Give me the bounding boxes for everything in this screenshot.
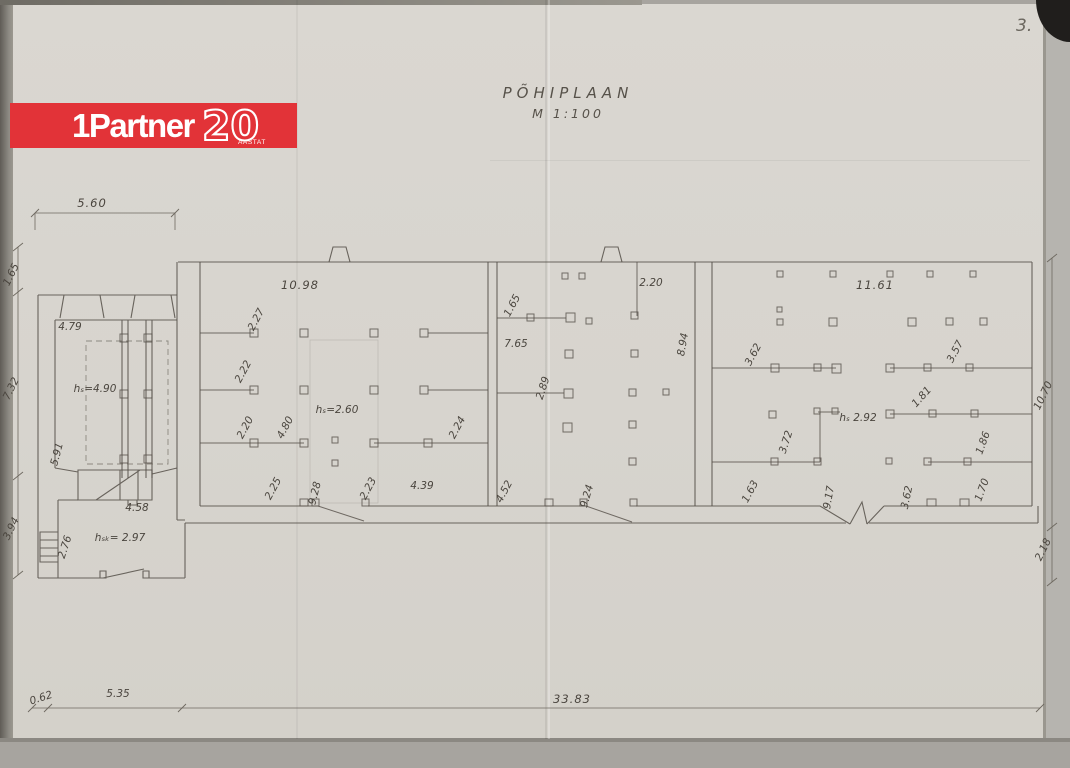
dim-bottom-b: 5.35 (106, 688, 130, 700)
hall3-dim-g: 9.17 (821, 485, 837, 510)
wing-depth-label: 5.91 (48, 441, 66, 467)
wing-width-label: 4.79 (58, 321, 82, 333)
interior-partitions (200, 262, 1032, 503)
annex-window-label: 2.76 (56, 534, 75, 560)
hall1-dim-h: 2.23 (358, 475, 380, 501)
hall1-dim-g: 9.28 (306, 480, 323, 506)
hall1-dim-i: 4.39 (410, 480, 434, 492)
dim-bottom-c: 33.83 (553, 692, 591, 706)
hall3-width-label: 11.61 (856, 278, 894, 292)
hall2-depth-label: 8.94 (675, 332, 691, 357)
hall3-dim-e: 1.86 (974, 430, 993, 456)
wing-dashed-zone (86, 341, 168, 464)
hall3-dim-d: 3.72 (777, 429, 796, 455)
hall1-dim-e: 2.24 (447, 414, 469, 440)
dim-left-a: 1.65 (1, 261, 22, 288)
dim-top-width: 5.60 (77, 196, 107, 210)
hall1-dim-d: 4.80 (275, 414, 297, 441)
hall1-dim-f: 2.25 (263, 475, 285, 502)
dim-left-b: 7.32 (1, 375, 22, 402)
hall2-dim-a: 2.20 (639, 277, 663, 289)
hall3-dim-b: 3.57 (945, 338, 967, 365)
dim-right-b: 2.18 (1033, 536, 1054, 563)
hall2-dim-f: 9.24 (578, 483, 596, 509)
dim-left-c: 3.94 (1, 516, 22, 542)
dimension-lines (13, 209, 1057, 712)
hall3-height-label: hₛ 2.92 (839, 412, 877, 424)
room-labels: 4.79 hₛ=4.90 5.91 4.58 hₛₖ= 2.97 2.76 10… (48, 277, 993, 560)
hall1-dim-b: 2.22 (233, 358, 255, 385)
hall1-dim-a: 2.27 (246, 306, 268, 333)
dimension-labels: 5.60 1.65 7.32 3.94 10.70 2.18 0.62 5.35… (1, 196, 1056, 707)
dim-bottom-a: 0.62 (28, 689, 54, 708)
floor-plan-drawing: 5.60 1.65 7.32 3.94 10.70 2.18 0.62 5.35… (0, 0, 1070, 768)
hall1-height-label: hₛ=2.60 (316, 404, 359, 416)
hall2-dim-d: 2.89 (534, 375, 553, 401)
hall3-dim-f: 1.63 (740, 478, 762, 504)
hall2-dim-c: 7.65 (504, 338, 528, 350)
annex-height-label: hₛₖ= 2.97 (95, 532, 146, 544)
hall1-width-label: 10.98 (281, 278, 319, 292)
hall2-dim-b: 1.65 (502, 292, 524, 319)
hall1-dim-c: 2.20 (235, 414, 257, 441)
wing-height-label: hₛ=4.90 (74, 383, 117, 395)
column-markers (120, 271, 987, 506)
annex-stair-label: 4.58 (125, 502, 149, 514)
hall3-dim-c: 1.81 (909, 384, 934, 409)
hall3-dim-i: 1.70 (973, 477, 992, 503)
hall3-dim-a: 3.62 (743, 341, 765, 368)
